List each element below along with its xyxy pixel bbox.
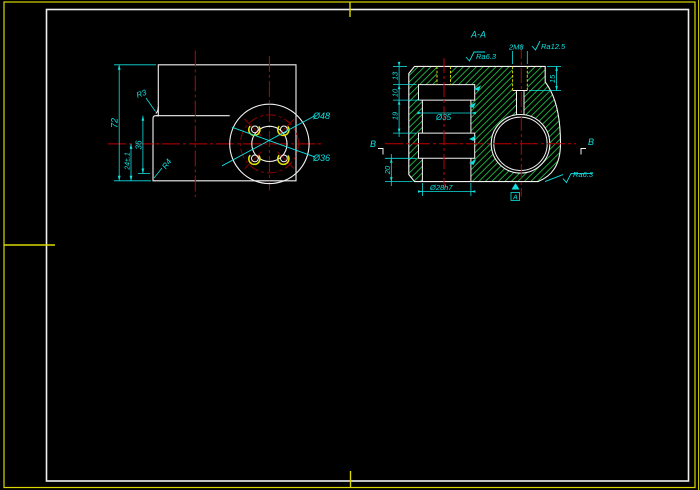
svg-text:Ra12.5: Ra12.5	[541, 42, 566, 51]
svg-text:Ø28h7: Ø28h7	[429, 183, 453, 192]
svg-text:72: 72	[110, 118, 120, 128]
svg-text:Ra6.3: Ra6.3	[476, 52, 497, 61]
svg-text:13: 13	[391, 71, 400, 80]
svg-text:15: 15	[548, 74, 557, 83]
svg-text:Ra6.3: Ra6.3	[573, 170, 594, 179]
svg-text:A-A: A-A	[470, 30, 486, 40]
svg-text:Ø36: Ø36	[312, 153, 330, 163]
svg-text:10: 10	[391, 88, 400, 97]
svg-text:A: A	[512, 195, 518, 202]
svg-text:Ø35: Ø35	[435, 113, 452, 122]
svg-text:36: 36	[135, 140, 144, 149]
svg-text:2M8: 2M8	[508, 43, 524, 52]
svg-text:Ø48: Ø48	[312, 111, 330, 121]
svg-text:24±.1: 24±.1	[125, 152, 132, 171]
svg-text:20: 20	[383, 165, 392, 175]
svg-text:B: B	[370, 139, 376, 149]
svg-text:B: B	[588, 137, 594, 147]
svg-text:19: 19	[391, 111, 400, 120]
